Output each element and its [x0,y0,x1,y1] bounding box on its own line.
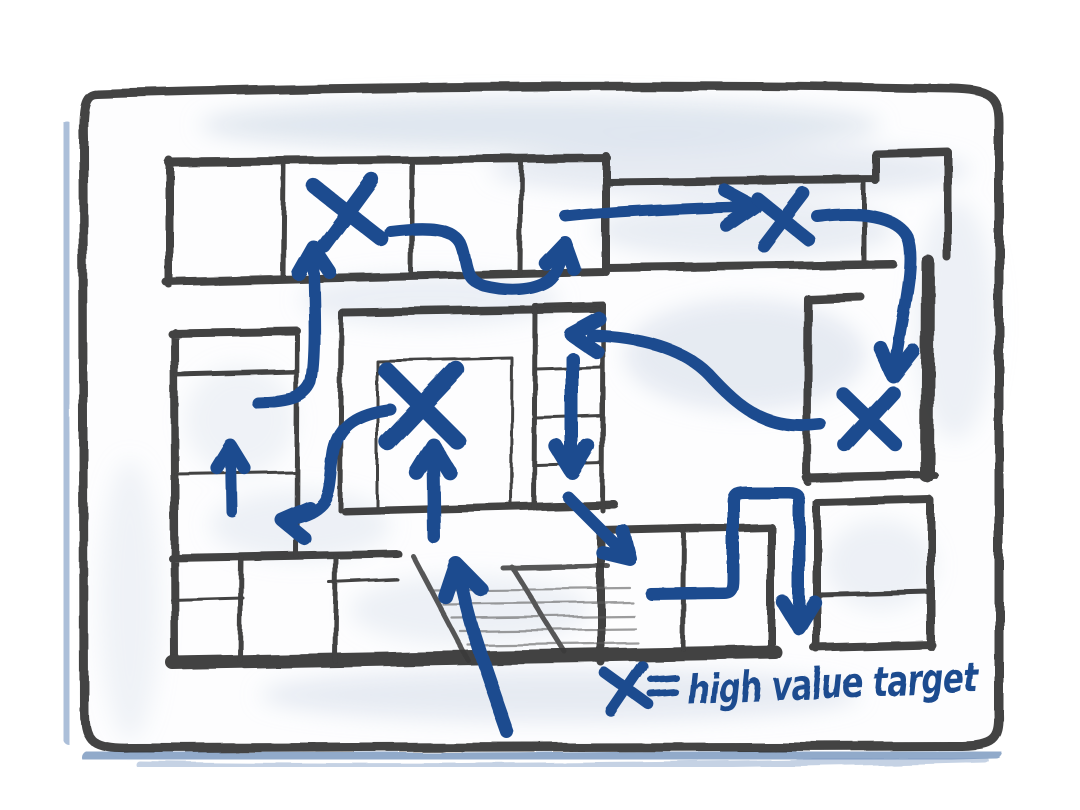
central-x-approach-shaft [433,454,434,537]
left-room-up-shaft [231,454,232,512]
hand-drawn-floor-plan: high value target [0,0,1080,810]
floor-plan-canvas: high value target [0,0,1080,810]
chalk-shadow-left [64,128,69,738]
chalk-shadow-bottom [88,752,996,759]
